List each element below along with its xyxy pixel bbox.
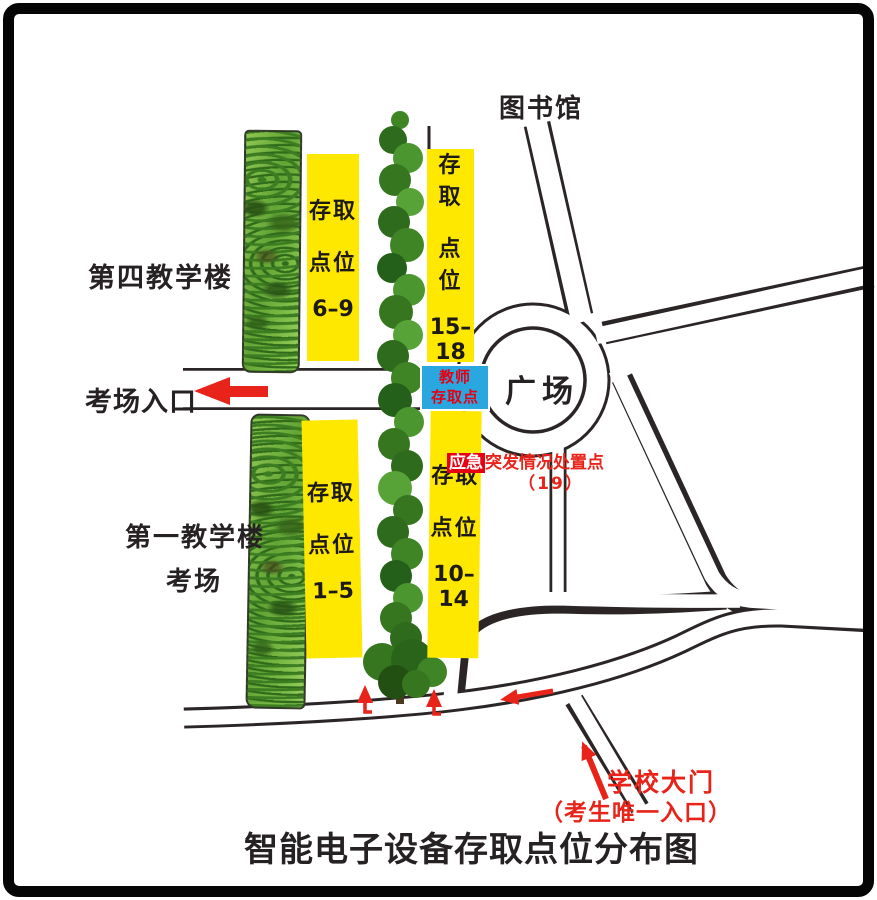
gate-entry-arrow-icon (584, 746, 606, 799)
path-up-arrow-right-icon (434, 694, 441, 714)
road-left-arrow-icon (505, 691, 553, 699)
path-up-arrow-left-icon (365, 690, 372, 712)
direction-arrows (0, 0, 877, 900)
exam-entrance-arrow-icon (194, 377, 268, 405)
campus-map: 存取 点位 6–9 存取 点位 15–18 存取 点位 1–5 存取 点位 10… (0, 0, 877, 900)
